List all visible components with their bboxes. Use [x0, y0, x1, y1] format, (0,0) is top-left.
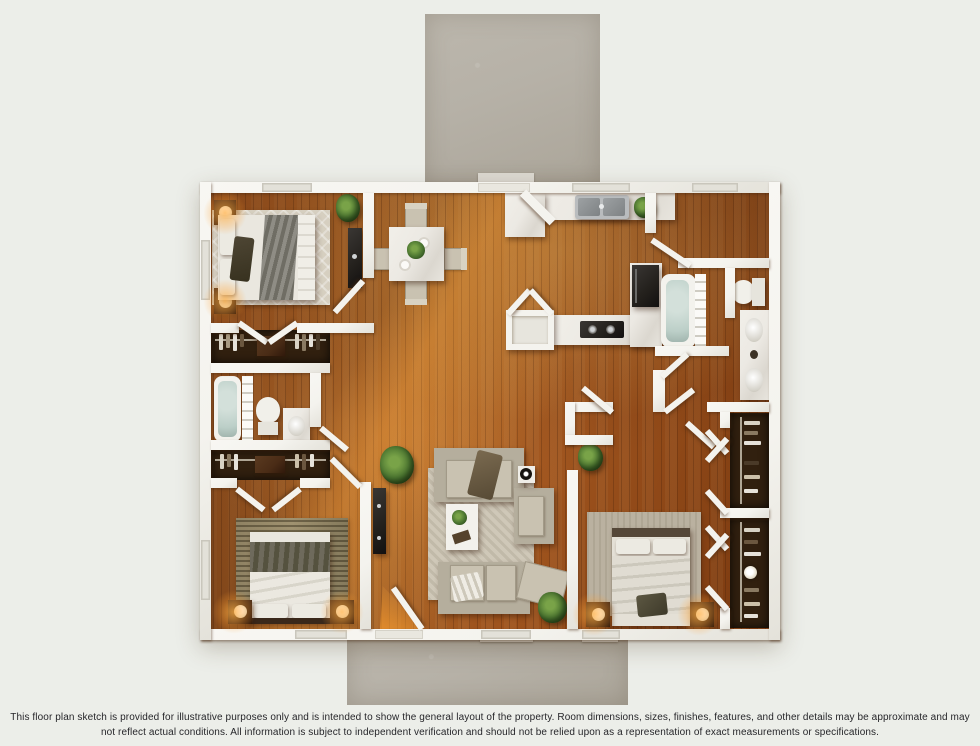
bedroom1-bed — [218, 215, 315, 300]
refrigerator — [632, 265, 659, 307]
burner — [606, 325, 615, 334]
lamp — [696, 608, 709, 621]
wall — [720, 412, 730, 428]
pillow — [653, 539, 686, 554]
blanket — [259, 215, 299, 300]
pantry — [506, 310, 554, 350]
bathroom2-double-vanity — [740, 310, 769, 400]
wall — [565, 435, 613, 445]
window — [582, 630, 620, 639]
headboard — [250, 618, 330, 624]
bathroom1-bathtub — [214, 376, 241, 442]
kitchen-double-sink — [575, 195, 629, 219]
lamp — [592, 608, 605, 621]
window — [201, 240, 210, 300]
pillow — [292, 604, 326, 618]
centerpiece-plant — [407, 241, 425, 259]
bedroom2-nightstand — [228, 600, 252, 624]
hanging-clothes — [220, 454, 224, 469]
headboard — [612, 528, 690, 537]
wall — [211, 323, 239, 333]
wall — [363, 193, 374, 278]
sink — [288, 416, 305, 436]
wall — [310, 373, 321, 427]
blanket — [250, 542, 330, 572]
closet-shelf — [255, 456, 285, 473]
faucet — [599, 204, 604, 209]
pillow — [616, 539, 650, 554]
closet-lamp — [744, 566, 757, 579]
side-table — [518, 466, 535, 483]
dining-chair — [405, 206, 427, 229]
wall — [567, 470, 578, 629]
living-room-tv — [373, 488, 386, 554]
bedroom2-nightstand — [330, 600, 354, 624]
wall — [211, 440, 330, 450]
throw-pillow — [229, 236, 254, 282]
sink — [745, 368, 763, 392]
master-nightstand — [690, 602, 714, 627]
floor-plant — [578, 444, 603, 471]
toilet-tank — [752, 278, 765, 306]
hanging-clothes — [744, 421, 760, 425]
sofa-top — [434, 448, 524, 502]
rear-door-opening — [478, 183, 530, 192]
dining-chair — [444, 248, 464, 270]
wall — [655, 346, 729, 356]
master-bed — [612, 528, 690, 626]
cooktop — [580, 321, 624, 338]
window — [572, 183, 630, 192]
sink — [745, 318, 763, 342]
wall — [211, 363, 330, 373]
burner — [588, 325, 597, 334]
record — [520, 468, 532, 480]
hall-closet-1 — [211, 330, 330, 363]
shower-curtain — [695, 274, 706, 348]
sofa-bottom — [438, 562, 530, 614]
table-plant — [452, 510, 467, 525]
wall — [645, 193, 656, 233]
rear-patio-concrete-pad — [425, 14, 600, 185]
books — [452, 530, 471, 545]
bathroom1-vanity — [283, 408, 310, 444]
bathroom1-toilet — [256, 397, 280, 423]
exterior-wall-right — [769, 182, 780, 640]
bathroom2-bathtub — [661, 274, 696, 348]
wall — [300, 478, 330, 488]
window — [295, 630, 347, 639]
lamp — [234, 605, 247, 618]
coffee-table — [446, 504, 478, 550]
window — [692, 183, 738, 192]
floor-plant — [380, 446, 414, 484]
bathroom2-toilet — [732, 280, 754, 304]
pillow — [254, 604, 288, 618]
hanging-clothes — [219, 334, 223, 350]
hanging-clothes — [744, 528, 760, 532]
front-door-opening — [375, 630, 423, 639]
walk-in-closet-lower — [730, 518, 769, 628]
plate — [399, 259, 411, 271]
hall-closet-2 — [211, 450, 330, 480]
front-porch-concrete-pad — [347, 633, 628, 705]
shower-curtain — [242, 376, 253, 442]
throw-blanket — [450, 572, 484, 603]
disclaimer-text: This floor plan sketch is provided for i… — [0, 710, 980, 740]
house-footprint — [200, 182, 780, 640]
dining-chair — [405, 279, 427, 302]
wall — [360, 482, 371, 629]
duvet — [250, 572, 330, 604]
wall — [707, 402, 769, 412]
floor-plan-rendering: This floor plan sketch is provided for i… — [0, 0, 980, 746]
window — [201, 540, 210, 600]
floor-plant — [538, 592, 567, 623]
walk-in-closet-upper — [730, 413, 769, 508]
dining-table — [389, 227, 444, 281]
window — [262, 183, 312, 192]
toilet-tank — [258, 422, 278, 435]
lamp — [336, 605, 349, 618]
bedroom2-bed — [250, 532, 330, 622]
wall — [725, 268, 735, 318]
armchair — [514, 488, 554, 544]
potted-plant — [336, 194, 360, 222]
duvet-edge — [298, 215, 315, 300]
wall — [297, 323, 374, 333]
throw-pillow — [636, 592, 668, 617]
master-nightstand — [586, 602, 610, 627]
window — [481, 630, 531, 639]
toiletries — [750, 350, 758, 359]
wall — [211, 478, 237, 488]
